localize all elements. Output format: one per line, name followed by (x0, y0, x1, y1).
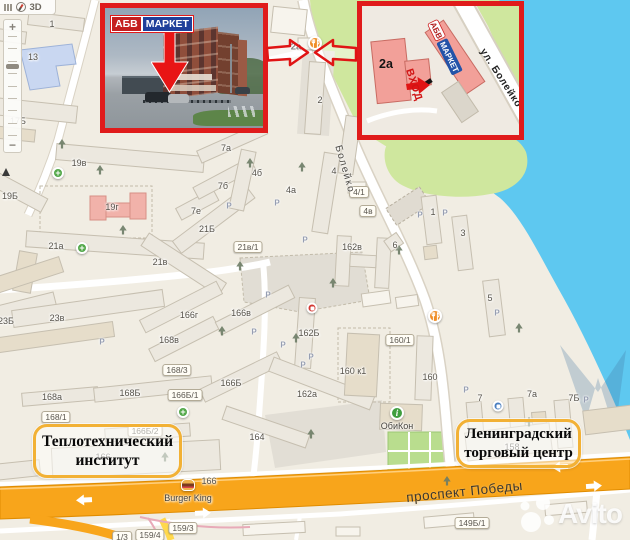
callout-teplotekhnichesky: Теплотехнический институт (33, 424, 182, 478)
inset-building-number: 2а (379, 57, 394, 71)
sign-market: МАРКЕТ (143, 17, 192, 31)
ruler-icon[interactable] (4, 4, 12, 11)
callout-line: торговый центр (459, 444, 578, 463)
map-canvas[interactable]: 11317Б19в19Б19г21а21в7е21Б21в/17а7б4б4а4… (0, 0, 630, 540)
zoom-slider-handle[interactable] (6, 64, 19, 69)
callout-line: Теплотехнический (36, 432, 179, 451)
photo-car (235, 87, 251, 94)
compass-icon[interactable] (16, 2, 26, 12)
callout-line: институт (36, 451, 179, 470)
photo-inset: АБВ МАРКЕТ (100, 3, 268, 133)
red-arrow-down-icon (151, 26, 189, 94)
map-inset: 2а ВХОД АБВ МАРКЕТ ул. Болейко (357, 1, 524, 140)
3d-button[interactable]: 3D (30, 2, 42, 13)
callout-line: Ленинградский (459, 425, 578, 444)
zoom-scale[interactable] (8, 34, 17, 138)
abv-market-sign: АБВ МАРКЕТ (110, 15, 194, 33)
photo-streetlight (230, 44, 232, 93)
photo-car (168, 94, 189, 102)
zoom-control: + − (3, 19, 22, 153)
zoom-out-button[interactable]: − (9, 138, 16, 152)
photo-crosswalk (228, 106, 255, 117)
photo-building-side (218, 32, 239, 96)
sign-abv: АБВ (112, 17, 141, 31)
zoom-in-button[interactable]: + (9, 20, 16, 34)
callout-leningradsky: Ленинградский торговый центр (456, 419, 581, 468)
map-toolbar: 3D (0, 0, 56, 15)
